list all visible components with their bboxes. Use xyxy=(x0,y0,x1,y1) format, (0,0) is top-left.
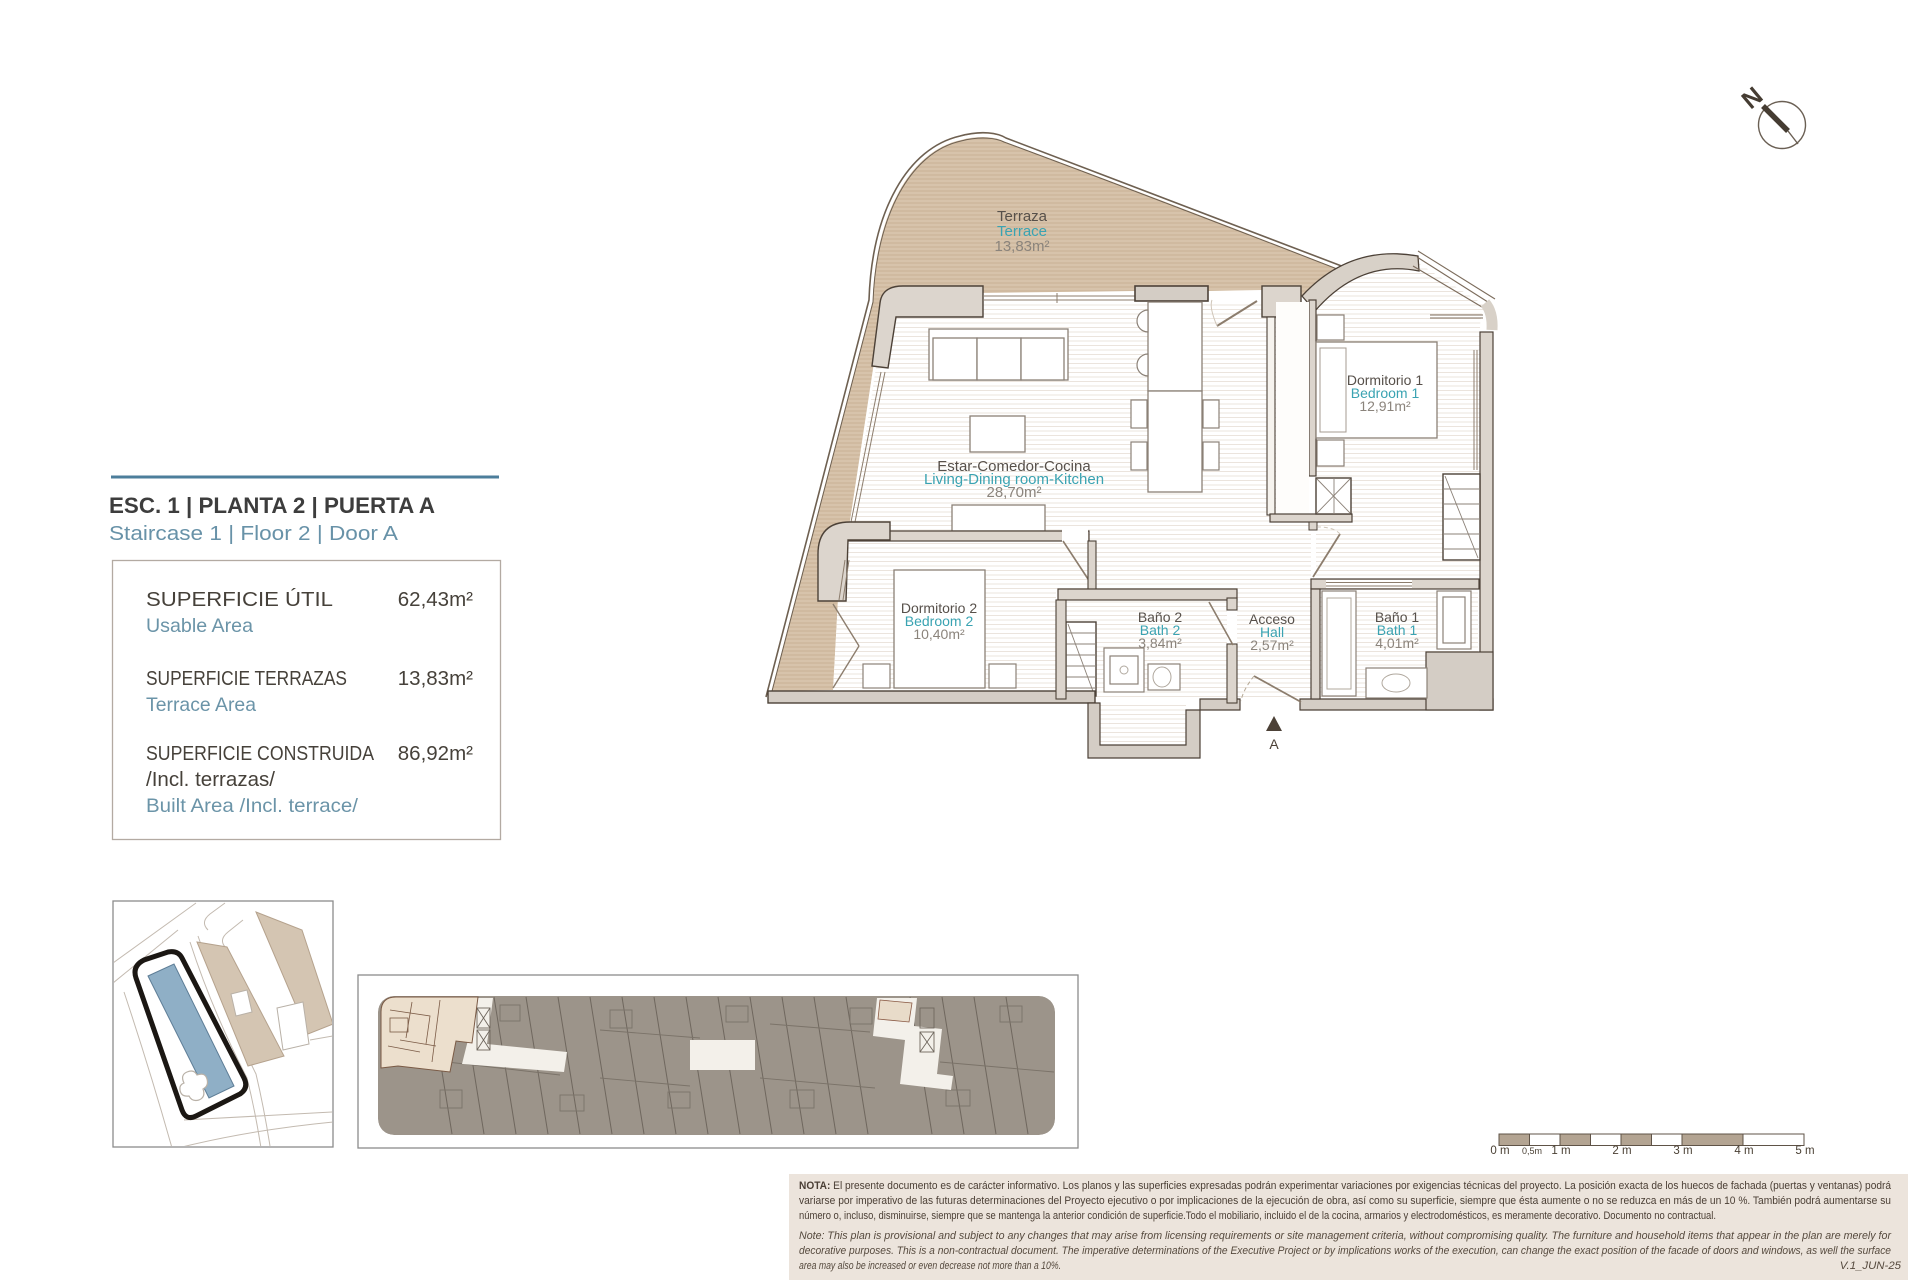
svg-text:Built Area /Incl. terrace/: Built Area /Incl. terrace/ xyxy=(146,795,359,817)
svg-text:Note: This plan is provisional: Note: This plan is provisional and subje… xyxy=(799,1230,1892,1242)
svg-text:Staircase 1 | Floor 2 | Door A: Staircase 1 | Floor 2 | Door A xyxy=(109,523,399,545)
svg-text:0,5m: 0,5m xyxy=(1522,1146,1542,1156)
svg-text:SUPERFICIE CONSTRUIDA: SUPERFICIE CONSTRUIDA xyxy=(146,742,374,765)
svg-text:número o, incluso, disminuirse: número o, incluso, disminuirse, siempre … xyxy=(799,1210,1716,1222)
svg-text:1 m: 1 m xyxy=(1551,1145,1570,1157)
svg-text:86,92m²: 86,92m² xyxy=(398,742,473,765)
svg-text:3,84m²: 3,84m² xyxy=(1138,635,1182,651)
svg-text:62,43m²: 62,43m² xyxy=(398,588,473,611)
svg-text:4 m: 4 m xyxy=(1734,1145,1753,1157)
svg-text:area may also be increased or: area may also be increased or even decre… xyxy=(799,1260,1061,1272)
svg-text:SUPERFICIE TERRAZAS: SUPERFICIE TERRAZAS xyxy=(146,667,347,690)
svg-text:13,83m²: 13,83m² xyxy=(398,667,473,690)
svg-text:V.1_JUN-25: V.1_JUN-25 xyxy=(1840,1260,1902,1272)
svg-text:/Incl. terrazas/: /Incl. terrazas/ xyxy=(146,768,275,791)
svg-text:5 m: 5 m xyxy=(1795,1145,1814,1157)
svg-text:13,83m²: 13,83m² xyxy=(994,238,1049,255)
svg-text:28,70m²: 28,70m² xyxy=(986,484,1041,501)
svg-text:4,01m²: 4,01m² xyxy=(1375,635,1419,651)
svg-text:12,91m²: 12,91m² xyxy=(1359,398,1411,414)
svg-text:3 m: 3 m xyxy=(1673,1145,1692,1157)
svg-text:SUPERFICIE ÚTIL: SUPERFICIE ÚTIL xyxy=(146,588,333,611)
svg-text:10,40m²: 10,40m² xyxy=(913,626,965,642)
svg-text:Terrace Area: Terrace Area xyxy=(146,694,256,716)
svg-text:2 m: 2 m xyxy=(1612,1145,1631,1157)
svg-text:Usable Area: Usable Area xyxy=(146,615,253,637)
svg-text:0 m: 0 m xyxy=(1490,1145,1509,1157)
svg-text:A: A xyxy=(1269,736,1279,752)
svg-text:2,57m²: 2,57m² xyxy=(1250,637,1294,653)
svg-text:decorative purposes. This is a: decorative purposes. This is a non-contr… xyxy=(799,1245,1891,1257)
svg-text:NOTA: El presente documento e: NOTA: El presente documento es de caráct… xyxy=(799,1180,1892,1192)
svg-text:variarse por imperativo de las: variarse por imperativo de las futuras d… xyxy=(799,1195,1891,1207)
svg-text:ESC. 1 | PLANTA 2 | PUERTA A: ESC. 1 | PLANTA 2 | PUERTA A xyxy=(109,493,435,518)
